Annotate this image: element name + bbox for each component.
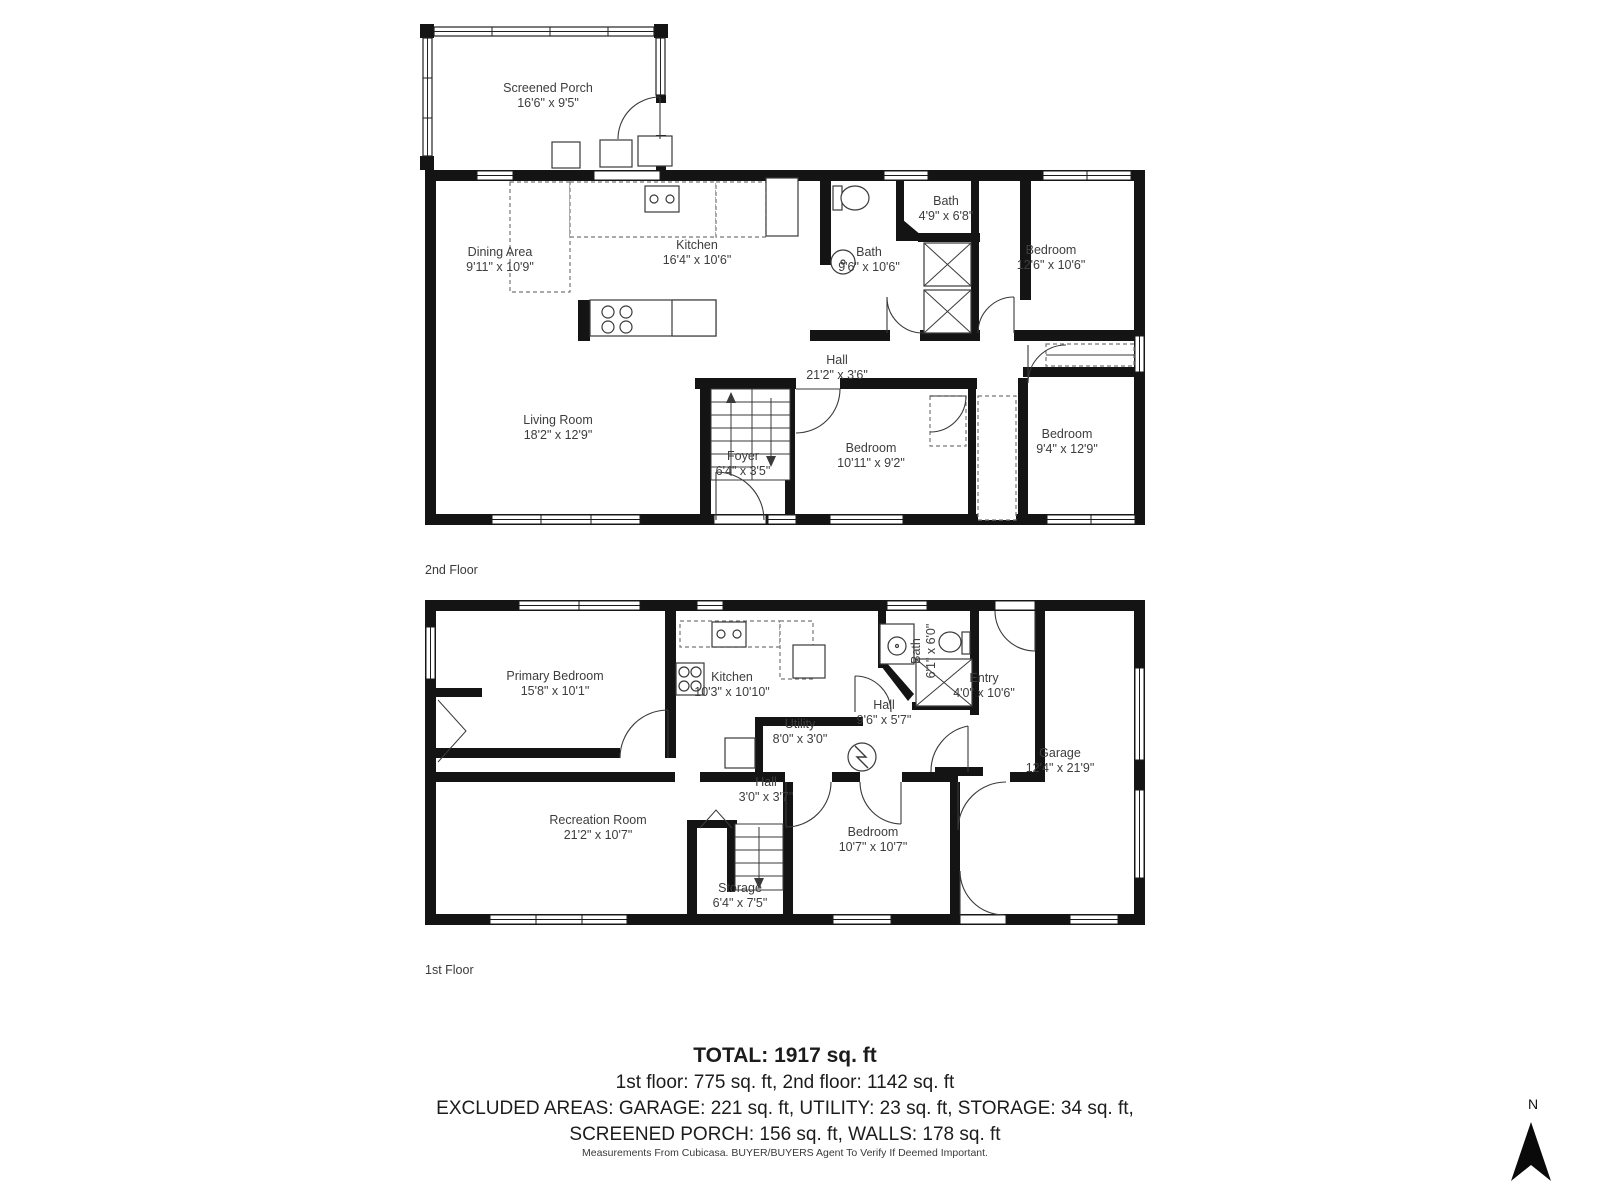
room-label-bedroom-1: Bedroom12'6" x 10'6" xyxy=(1017,243,1086,274)
room-label-bedroom-3: Bedroom9'4" x 12'9" xyxy=(1036,427,1098,458)
room-label-dining-area: Dining Area9'11" x 10'9" xyxy=(466,245,534,276)
room-label-bedroom-1st: Bedroom10'7" x 10'7" xyxy=(839,825,908,856)
room-label-hall-1st: Hall9'6" x 5'7" xyxy=(857,698,912,729)
room-label-bath-main: Bath9'6" x 10'6" xyxy=(838,245,900,276)
room-label-bath-1st: Bath6'1" x 6'0" xyxy=(909,624,940,679)
excluded-areas-text-2: SCREENED PORCH: 156 sq. ft, WALLS: 178 s… xyxy=(250,1124,1320,1146)
room-label-garage: Garage12'4" x 21'9" xyxy=(1026,746,1095,777)
room-label-utility: Utility8'0" x 3'0" xyxy=(773,717,828,748)
floorplan-page: Screened Porch16'6" x 9'5" Dining Area9'… xyxy=(0,0,1600,1200)
floorplan-drawing xyxy=(0,0,1600,1200)
compass-north-label: N xyxy=(1528,1096,1538,1112)
floor-label-2nd: 2nd Floor xyxy=(425,563,478,577)
floor-label-1st: 1st Floor xyxy=(425,963,474,977)
room-label-screened-porch: Screened Porch16'6" x 9'5" xyxy=(503,81,593,112)
room-label-foyer: Foyer6'4" x 3'5" xyxy=(716,449,771,480)
room-label-bath-small: Bath4'9" x 6'8" xyxy=(919,194,974,225)
room-label-bedroom-2: Bedroom10'11" x 9'2" xyxy=(837,441,905,472)
room-label-recreation-room: Recreation Room21'2" x 10'7" xyxy=(549,813,646,844)
area-summary: TOTAL: 1917 sq. ft 1st floor: 775 sq. ft… xyxy=(250,1044,1320,1150)
room-label-storage: Storage6'4" x 7'5" xyxy=(713,881,768,912)
total-area-text: TOTAL: 1917 sq. ft xyxy=(250,1044,1320,1068)
room-label-kitchen-2nd: Kitchen16'4" x 10'6" xyxy=(663,238,732,269)
room-label-hall-2nd: Hall21'2" x 3'6" xyxy=(806,353,868,384)
disclaimer-text: Measurements From Cubicasa. BUYER/BUYERS… xyxy=(250,1147,1320,1159)
floor-areas-text: 1st floor: 775 sq. ft, 2nd floor: 1142 s… xyxy=(250,1072,1320,1094)
room-label-primary-bedroom: Primary Bedroom15'8" x 10'1" xyxy=(506,669,603,700)
compass-arrow-icon xyxy=(1511,1122,1551,1181)
room-label-entry: Entry4'0" x 10'6" xyxy=(953,671,1015,702)
room-label-hall-small: Hall3'0" x 3'7" xyxy=(739,775,794,806)
room-label-living-room: Living Room18'2" x 12'9" xyxy=(523,413,592,444)
excluded-areas-text: EXCLUDED AREAS: GARAGE: 221 sq. ft, UTIL… xyxy=(250,1098,1320,1120)
room-label-kitchen-1st: Kitchen10'3" x 10'10" xyxy=(694,670,770,701)
